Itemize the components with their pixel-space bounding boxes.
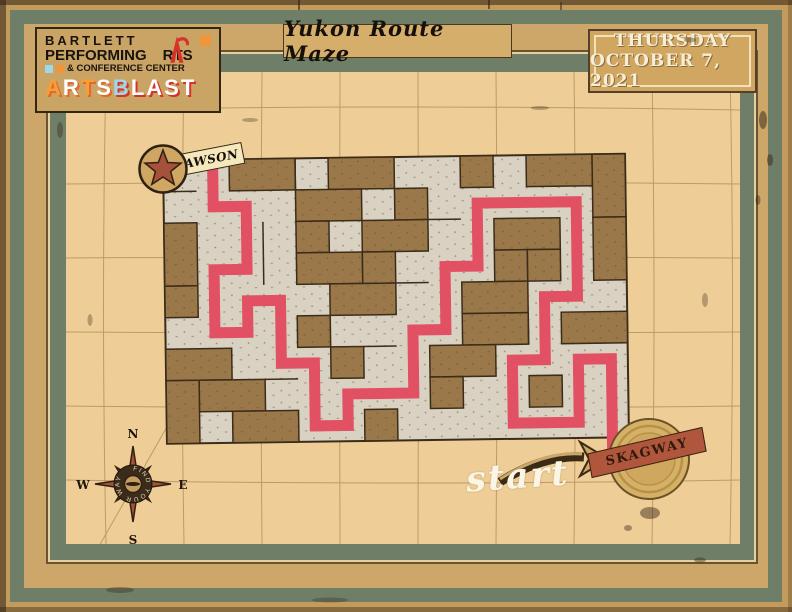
logo-box: BARTLETT PERFORMING RTS & CONFERENCE CEN… <box>35 27 221 113</box>
page-title: Yukon Route Maze <box>284 16 511 66</box>
date-day: THURSDAY <box>614 31 731 51</box>
compass-n: N <box>128 427 139 441</box>
artsblast-letter: S <box>96 75 113 100</box>
artsblast-letter: S <box>164 75 181 100</box>
logo-performing-text: PERFORMING <box>45 48 147 63</box>
title-box: Yukon Route Maze <box>283 24 512 58</box>
logo-orange-square-icon <box>200 35 211 46</box>
event-poster: BARTLETT PERFORMING RTS & CONFERENCE CEN… <box>0 0 792 612</box>
logo-orange-square2-icon <box>56 65 64 73</box>
artsblast-letter: R <box>63 75 81 100</box>
artsblast-letter: A <box>45 75 63 100</box>
artsblast-letter: T <box>81 75 96 100</box>
logo-blue-square-icon <box>45 65 53 73</box>
compass-s: S <box>129 533 138 546</box>
maze <box>163 154 629 445</box>
date-full: OCTOBER 7, 2021 <box>590 51 755 91</box>
logo-artsblast: ARTSBLAST <box>45 76 212 100</box>
maze-canvas <box>163 154 629 445</box>
dancer-icon <box>167 34 189 64</box>
logo-line-conference: & CONFERENCE CENTER <box>45 63 212 74</box>
start-label: start <box>465 452 571 500</box>
compass-w: W <box>75 478 90 492</box>
date-box: THURSDAY OCTOBER 7, 2021 <box>588 29 757 93</box>
artsblast-letter: L <box>131 75 146 100</box>
compass-e: E <box>178 478 187 492</box>
dawson-star-icon <box>137 143 189 195</box>
artsblast-letter: A <box>146 75 164 100</box>
compass-rose-icon: N S E W FIND YOUR WAY <box>75 422 191 546</box>
artsblast-letter: T <box>181 75 196 100</box>
artsblast-letter: B <box>113 75 131 100</box>
logo-conference-text: & CONFERENCE CENTER <box>67 63 185 74</box>
